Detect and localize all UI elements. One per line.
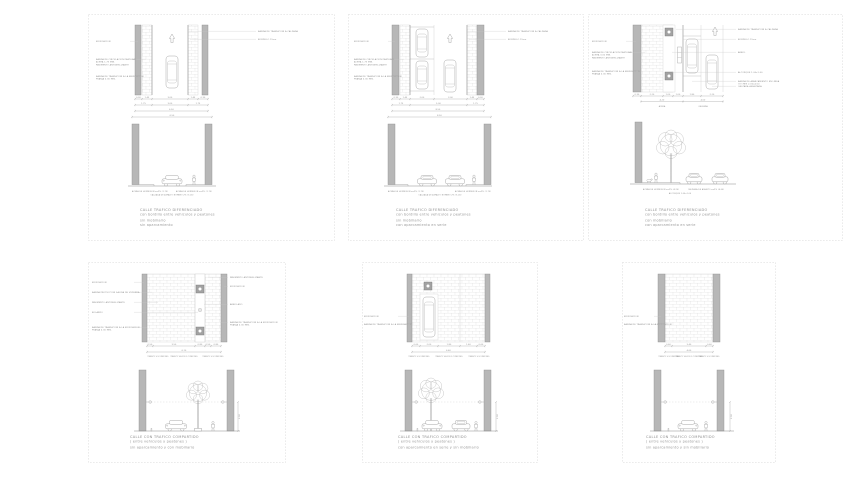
svg-text:0.60: 0.60 bbox=[414, 344, 419, 346]
svg-text:PAVIMENTO ANTIDESLIZANTE: PAVIMENTO ANTIDESLIZANTE bbox=[354, 63, 388, 66]
svg-text:PAVIMENTO ANTIDESLIZANTE: PAVIMENTO ANTIDESLIZANTE bbox=[92, 301, 126, 304]
caption-line: sin aparcamiento bbox=[140, 223, 215, 228]
caption-line: con bordillo entre vehiculos y peatones bbox=[396, 213, 471, 218]
svg-text:TRANSITO SOLO PEATONES: TRANSITO SOLO PEATONES bbox=[203, 355, 224, 358]
svg-text:2.00: 2.00 bbox=[420, 97, 425, 99]
svg-text:BANDA DE APARCAMIENTO EN LINEA: BANDA DE APARCAMIENTO EN LINEA bbox=[738, 80, 780, 83]
svg-text:TRANSITO SOLO PEATONES: TRANSITO SOLO PEATONES bbox=[148, 355, 169, 358]
svg-text:6.50: 6.50 bbox=[169, 109, 174, 111]
svg-text:BANDA DE TRANSICION A CALZADA: BANDA DE TRANSICION A CALZADA bbox=[258, 30, 298, 33]
svg-text:PAVIMENTO ANTIDESLIZANTE: PAVIMENTO ANTIDESLIZANTE bbox=[96, 63, 130, 66]
svg-text:BANDA DE TRANSICION A CALZADA: BANDA DE TRANSICION A CALZADA bbox=[508, 30, 548, 33]
svg-text:0.80: 0.80 bbox=[214, 344, 219, 346]
svg-text:BANDA DE CIRCULACION PEATONAL: BANDA DE CIRCULACION PEATONAL bbox=[592, 51, 633, 54]
svg-text:BANDA DE TRANSICION A LA EDIFI: BANDA DE TRANSICION A LA EDIFICACION bbox=[96, 75, 144, 78]
svg-text:ARBOL: ARBOL bbox=[738, 51, 746, 54]
svg-text:BANDA DE TRANSICION A LA EDIFI: BANDA DE TRANSICION A LA EDIFICACION bbox=[230, 321, 278, 324]
svg-text:3.00: 3.00 bbox=[448, 97, 453, 99]
svg-text:ACERA DE HORMIGON s=2% (4.20): ACERA DE HORMIGON s=2% (4.20) bbox=[643, 188, 679, 191]
svg-text:0.30: 0.30 bbox=[201, 97, 206, 99]
svg-text:EDIFICACION: EDIFICACION bbox=[592, 40, 607, 43]
sheet-caption: CALLE CON TRAFICO COMPARTIDO ( entre veh… bbox=[130, 435, 199, 450]
svg-text:2.50: 2.50 bbox=[731, 413, 733, 418]
svg-text:0.30: 0.30 bbox=[478, 97, 483, 99]
caption-line: con aparcamiento en serie y sin mobiliar… bbox=[398, 446, 479, 451]
svg-text:1.80: 1.80 bbox=[447, 344, 452, 346]
svg-text:0.60: 0.60 bbox=[707, 344, 712, 346]
caption-line: sin aparcamiento y sin mobiliario bbox=[646, 446, 715, 451]
svg-text:EDIFICACION: EDIFICACION bbox=[624, 315, 639, 318]
svg-text:0.50: 0.50 bbox=[206, 344, 211, 346]
svg-text:6.40: 6.40 bbox=[446, 350, 451, 352]
svg-text:FRANJA 0.30 MIN.: FRANJA 0.30 MIN. bbox=[230, 324, 250, 327]
svg-text:4.00: 4.00 bbox=[701, 100, 706, 102]
svg-text:BORDILLO 15cm: BORDILLO 15cm bbox=[508, 39, 526, 41]
svg-text:5.00: 5.00 bbox=[436, 103, 441, 105]
svg-text:TRANSITO SOLO PEATONES: TRANSITO SOLO PEATONES bbox=[699, 355, 720, 358]
svg-text:PAVIMENTO ANTIDESLIZANTE: PAVIMENTO ANTIDESLIZANTE bbox=[230, 276, 264, 279]
svg-text:CALZADA DE ASFALTO BOMBEO 2% (: CALZADA DE ASFALTO BOMBEO 2% (3.00) bbox=[150, 194, 193, 197]
svg-text:3.50: 3.50 bbox=[172, 344, 177, 346]
caption-line: sin aparcamiento y con mobiliario bbox=[130, 446, 199, 451]
caption-line: ( entre vehiculos y peatones ) bbox=[130, 440, 199, 445]
svg-text:1.00: 1.00 bbox=[666, 94, 671, 96]
svg-text:1.75: 1.75 bbox=[473, 103, 478, 105]
svg-text:ARBOLADO: ARBOLADO bbox=[230, 303, 243, 306]
svg-text:1.45: 1.45 bbox=[191, 97, 196, 99]
street-section-drawing: EDIFICACIONBANDA DE TRANSICION A LA EDIF… bbox=[362, 262, 538, 463]
svg-text:0.80: 0.80 bbox=[198, 344, 203, 346]
svg-text:EDIFICACION: EDIFICACION bbox=[96, 40, 111, 43]
svg-text:FRANJA 0.30 MIN.: FRANJA 0.30 MIN. bbox=[92, 329, 112, 332]
caption-line: con aparcamiento en serie bbox=[396, 223, 471, 228]
svg-text:CALZADA DE ASFALTO s=2% (4.00): CALZADA DE ASFALTO s=2% (4.00) bbox=[688, 188, 724, 191]
sheet-caption: CALLE CON TRAFICO COMPARTIDO ( entre veh… bbox=[646, 435, 715, 450]
svg-text:1.40: 1.40 bbox=[466, 344, 471, 346]
svg-text:0.60: 0.60 bbox=[479, 344, 484, 346]
svg-text:6.10: 6.10 bbox=[182, 350, 187, 352]
svg-text:FRANJA 0.30 MIN.: FRANJA 0.30 MIN. bbox=[592, 73, 612, 76]
street-section-drawing: EDIFICACIONBANDA PROTECCION SALIDA DE VI… bbox=[88, 262, 286, 463]
svg-text:BORDILLO 15cm: BORDILLO 15cm bbox=[738, 39, 756, 41]
svg-text:BANDA DE CIRCULACION PEATONAL: BANDA DE CIRCULACION PEATONAL bbox=[354, 58, 395, 61]
svg-text:EDIFICACION: EDIFICACION bbox=[230, 285, 245, 288]
svg-text:CALZADA ASFALTADA: CALZADA ASFALTADA bbox=[738, 85, 762, 88]
svg-text:1.75: 1.75 bbox=[196, 103, 201, 105]
svg-text:3.40: 3.40 bbox=[687, 344, 692, 346]
svg-text:BANDA DE CIRCULACION PEATONAL: BANDA DE CIRCULACION PEATONAL bbox=[96, 58, 137, 61]
svg-text:0.50: 0.50 bbox=[148, 344, 153, 346]
drawing-board: EDIFICACIONBANDA DE CIRCULACION PEATONAL… bbox=[0, 0, 864, 480]
svg-text:0.30: 0.30 bbox=[635, 94, 640, 96]
sheet-caption: CALLE TRAFICO DIFERENCIADO con bordillo … bbox=[140, 208, 215, 228]
svg-text:BOLARDO: BOLARDO bbox=[92, 311, 103, 314]
svg-text:EDIFICACION: EDIFICACION bbox=[364, 315, 379, 318]
svg-text:8.50: 8.50 bbox=[437, 115, 442, 117]
caption-line: con aparcamiento en serie bbox=[645, 223, 720, 228]
svg-text:4.60: 4.60 bbox=[687, 350, 692, 352]
svg-text:TRANSITO VEHICULOS Y PEATONES: TRANSITO VEHICULOS Y PEATONES bbox=[435, 355, 462, 358]
svg-text:1.45: 1.45 bbox=[470, 97, 475, 99]
svg-text:2.20: 2.20 bbox=[650, 94, 655, 96]
caption-line: con bordillo entre vehiculos y peatones bbox=[140, 213, 215, 218]
street-section-drawing: EDIFICACIONBANDA DE CIRCULACION PEATONAL… bbox=[588, 14, 843, 241]
sheet-calle-trafico-compartido-2: EDIFICACIONBANDA DE TRANSICION A LA EDIF… bbox=[362, 262, 538, 463]
svg-text:ACERA DE HORMIGON s=2% (1.75): ACERA DE HORMIGON s=2% (1.75) bbox=[176, 190, 212, 193]
svg-text:BANDA PROTECCION SALIDA DE VIV: BANDA PROTECCION SALIDA DE VIVIENDA bbox=[92, 291, 140, 294]
sheet-calle-trafico-compartido-1: EDIFICACIONBANDA PROTECCION SALIDA DE VI… bbox=[88, 262, 286, 463]
svg-text:1.75: 1.75 bbox=[141, 103, 146, 105]
svg-text:ACERA 1.75 MIN.: ACERA 1.75 MIN. bbox=[96, 61, 115, 64]
svg-text:3.00: 3.00 bbox=[168, 103, 173, 105]
caption-line: con bordillo entre vehiculos y peatones bbox=[645, 213, 720, 218]
svg-text:0.30: 0.30 bbox=[394, 97, 399, 99]
svg-text:FRANJA 0.30 MIN.: FRANJA 0.30 MIN. bbox=[354, 78, 374, 81]
svg-text:1.45: 1.45 bbox=[403, 97, 408, 99]
street-section-drawing: EDIFICACIONBANDA DE CIRCULACION PEATONAL… bbox=[88, 14, 335, 241]
svg-text:0.30: 0.30 bbox=[136, 97, 141, 99]
svg-text:ACERA 1.75 MIN.: ACERA 1.75 MIN. bbox=[354, 61, 373, 64]
sheet-calle-trafico-compartido-3: EDIFICACIONBANDA DE TRANSICION A LA EDIF… bbox=[622, 262, 776, 463]
svg-text:BORDILLO 15cm: BORDILLO 15cm bbox=[258, 39, 276, 41]
svg-text:BANDA DE TRANSICION A LA EDIFI: BANDA DE TRANSICION A LA EDIFICACION bbox=[364, 323, 412, 326]
svg-text:ACERA DE HORMIGON s=2% (1.75): ACERA DE HORMIGON s=2% (1.75) bbox=[388, 190, 424, 193]
svg-text:BANDA DE TRANSICION A LA EDIFI: BANDA DE TRANSICION A LA EDIFICACION bbox=[624, 323, 672, 326]
svg-text:2.50: 2.50 bbox=[497, 413, 499, 418]
svg-text:BANDA DE TRANSICION A LA EDIFI: BANDA DE TRANSICION A LA EDIFICACION bbox=[354, 75, 402, 78]
svg-text:ACERA DE HORMIGON s=2% (1.75): ACERA DE HORMIGON s=2% (1.75) bbox=[132, 190, 168, 193]
svg-text:6.50: 6.50 bbox=[170, 115, 175, 117]
svg-text:ACERA: ACERA bbox=[659, 105, 666, 108]
sheet-caption: CALLE TRAFICO DIFERENCIADO con bordillo … bbox=[645, 208, 720, 228]
svg-text:0.60: 0.60 bbox=[666, 344, 671, 346]
svg-text:BANDA DE TRANSICION A CALZADA: BANDA DE TRANSICION A CALZADA bbox=[738, 28, 778, 31]
svg-text:8.50: 8.50 bbox=[436, 109, 441, 111]
sheet-calle-trafico-diferenciado-3: EDIFICACIONBANDA DE CIRCULACION PEATONAL… bbox=[588, 14, 843, 241]
svg-text:1.45: 1.45 bbox=[145, 97, 150, 99]
svg-text:PAVIMENTO ANTIDESLIZANTE: PAVIMENTO ANTIDESLIZANTE bbox=[592, 56, 626, 59]
caption-line: ( entre vehiculos y peatones ) bbox=[646, 440, 715, 445]
caption-line: ( entre vehiculos y peatones ) bbox=[398, 440, 479, 445]
svg-text:1.75: 1.75 bbox=[399, 103, 404, 105]
svg-text:BANDA DE TRANSICION A LA EDIFI: BANDA DE TRANSICION A LA EDIFICACION bbox=[92, 326, 140, 329]
svg-text:TRANSITO SOLO PEATONES: TRANSITO SOLO PEATONES bbox=[409, 355, 430, 358]
svg-text:ACERA 3.00 MIN.: ACERA 3.00 MIN. bbox=[592, 54, 611, 57]
svg-text:EDIFICACION: EDIFICACION bbox=[92, 281, 107, 284]
svg-text:4.20: 4.20 bbox=[660, 100, 665, 102]
sheet-caption: CALLE CON TRAFICO COMPARTIDO ( entre veh… bbox=[398, 435, 479, 450]
svg-text:FRANJA 0.30 MIN.: FRANJA 0.30 MIN. bbox=[96, 78, 116, 81]
svg-text:TRANSITO VEHICULOS Y PEATONES: TRANSITO VEHICULOS Y PEATONES bbox=[170, 355, 197, 358]
svg-text:2.50: 2.50 bbox=[239, 413, 241, 418]
svg-text:1.80: 1.80 bbox=[690, 94, 695, 96]
svg-text:BANDA DE TRANSICION A LA EDIFI: BANDA DE TRANSICION A LA EDIFICACION bbox=[592, 70, 640, 73]
svg-text:1.00: 1.00 bbox=[676, 94, 681, 96]
sheet-caption: CALLE TRAFICO DIFERENCIADO con bordillo … bbox=[396, 208, 471, 228]
svg-text:2.00: 2.00 bbox=[427, 344, 432, 346]
street-section-drawing: EDIFICACIONBANDA DE CIRCULACION PEATONAL… bbox=[348, 14, 584, 241]
street-section-drawing: EDIFICACIONBANDA DE TRANSICION A LA EDIF… bbox=[622, 262, 776, 463]
sheet-calle-trafico-diferenciado-1: EDIFICACIONBANDA DE CIRCULACION PEATONAL… bbox=[88, 14, 335, 241]
svg-text:2.20: 2.20 bbox=[710, 94, 715, 96]
svg-text:TRANSITO SOLO PEATONES: TRANSITO SOLO PEATONES bbox=[469, 355, 490, 358]
svg-text:3.00: 3.00 bbox=[168, 97, 173, 99]
svg-text:EDIFICACION: EDIFICACION bbox=[354, 40, 369, 43]
svg-text:ACERA DE HORMIGON s=2% (1.75): ACERA DE HORMIGON s=2% (1.75) bbox=[455, 190, 491, 193]
svg-text:CALZADA DE ASFALTO BOMBEO 2% (: CALZADA DE ASFALTO BOMBEO 2% (5.00) bbox=[418, 194, 461, 197]
svg-text:ALCORQUE 1.00x1.00: ALCORQUE 1.00x1.00 bbox=[669, 192, 692, 195]
sheet-calle-trafico-diferenciado-2: EDIFICACIONBANDA DE CIRCULACION PEATONAL… bbox=[348, 14, 584, 241]
svg-text:CALZADA: CALZADA bbox=[698, 105, 708, 108]
svg-text:ALCORQUE 1.00x1.00: ALCORQUE 1.00x1.00 bbox=[738, 71, 763, 74]
